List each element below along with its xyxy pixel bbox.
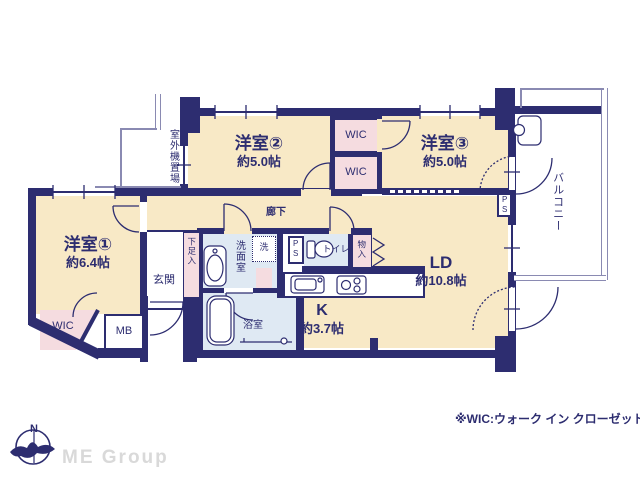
room3-label: 洋室③ xyxy=(400,134,490,154)
wic-room1-label: WIC xyxy=(41,320,85,333)
room3-size: 約5.0帖 xyxy=(400,155,490,170)
shoe-closet-label: 下足入 xyxy=(186,237,196,266)
laundry-label: 洗 xyxy=(253,242,275,252)
ld-size: 約10.8帖 xyxy=(396,274,486,289)
toilet-icon xyxy=(307,241,315,258)
wic-upper-label: WIC xyxy=(334,129,378,142)
room1-label: 洋室① xyxy=(43,235,133,255)
room2-label: 洋室② xyxy=(214,134,304,154)
wic-lower-label: WIC xyxy=(334,166,378,179)
kitchen-size: 約3.7帖 xyxy=(277,322,367,337)
bath-label: 浴室 xyxy=(231,320,275,332)
storage-label: 物入 xyxy=(356,240,366,259)
company-logo-text: ME Group xyxy=(62,447,169,469)
floorplan-canvas: 洋室② 約5.0帖 洋室③ 約5.0帖 洋室① 約6.4帖 LD 約10.8帖 … xyxy=(0,0,640,480)
compass-n-label: N xyxy=(26,423,42,436)
ps-balcony-label: PS xyxy=(500,195,509,215)
wic-footnote: ※WIC:ウォーク イン クローゼット xyxy=(455,413,625,427)
toilet-label: トイレ xyxy=(318,244,354,254)
corridor-label: 廊下 xyxy=(251,207,301,219)
outdoor-unit-label: 室外機置場 xyxy=(167,129,179,184)
genkan-label: 玄関 xyxy=(139,274,189,287)
room2-size: 約5.0帖 xyxy=(214,155,304,170)
room1-size: 約6.4帖 xyxy=(43,256,133,271)
ps-center-label: PS xyxy=(291,239,300,259)
washroom-label: 洗面室 xyxy=(233,240,245,273)
ld-label: LD xyxy=(396,253,486,273)
kitchen-label: K xyxy=(277,302,367,320)
balcony-label: バルコニー xyxy=(551,172,564,232)
mb-label: MB xyxy=(104,325,144,338)
